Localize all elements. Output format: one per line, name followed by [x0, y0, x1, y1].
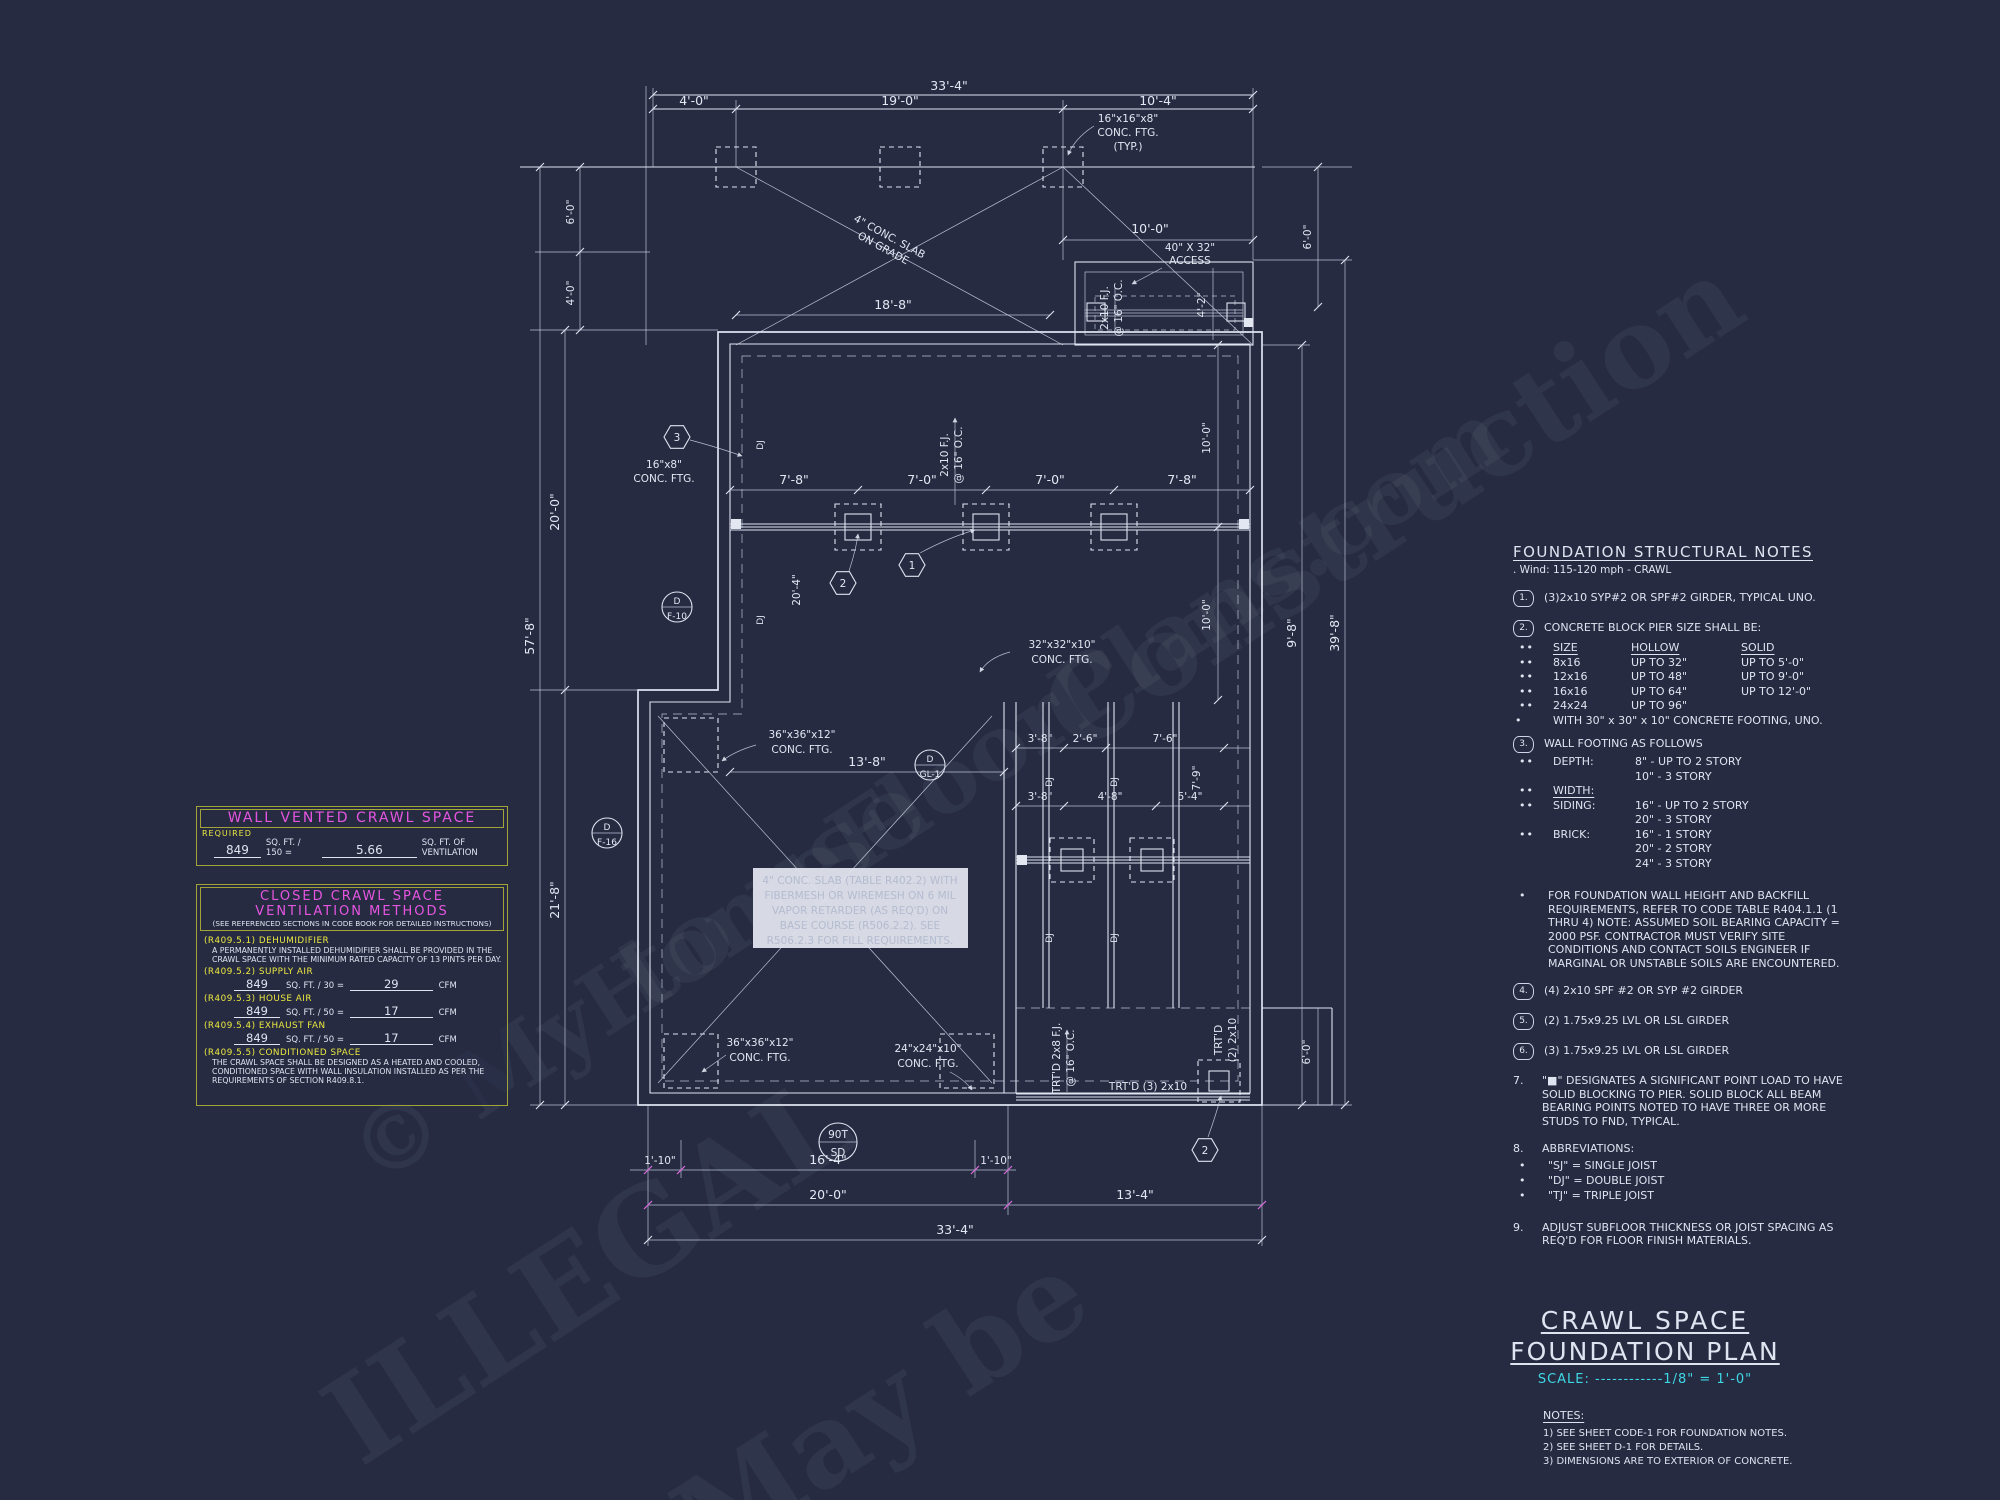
- access-room: 10'-0" 40" X 32" ACCESS 2x10 F.J. @ 16" …: [1059, 221, 1257, 345]
- svg-text:F-10: F-10: [667, 612, 687, 622]
- slab-note-line: R506.2.3 FOR FILL REQUIREMENTS.: [767, 935, 954, 947]
- dim-label: 19'-0": [881, 93, 919, 108]
- footing-label: 32"x32"x10": [1029, 639, 1096, 651]
- slab-note-line: BASE COURSE (R506.2.2). SEE: [780, 920, 940, 932]
- item-body: THE CRAWL SPACE SHALL BE DESIGNED AS A H…: [212, 1058, 502, 1085]
- dim-label: 16'-4": [809, 1152, 847, 1167]
- cfm-value: 29: [350, 978, 433, 991]
- area-value: 849: [234, 1032, 280, 1045]
- lower-left-room: 36"x36"x12" CONC. FTG. 13'-8" D GL-1 4" …: [658, 702, 1016, 1161]
- svg-text:GL-1: GL-1: [920, 770, 941, 780]
- footing-label: 24"x24"x10": [895, 1043, 962, 1055]
- point-load-square: [1239, 519, 1249, 529]
- footing-label: CONC. FTG.: [633, 473, 694, 485]
- dim-label: 7'-8": [779, 472, 809, 487]
- svg-text:90T: 90T: [828, 1129, 848, 1141]
- area-value: 849: [234, 978, 280, 991]
- footing-label: CONC. FTG.: [729, 1052, 790, 1064]
- note-item: 4. (4) 2x10 SPF #2 OR SYP #2 GIRDER: [1513, 984, 1851, 1000]
- note-marker: 9.: [1513, 1221, 1532, 1248]
- keynote-number: 1: [909, 560, 916, 572]
- note-item: 8. ABBREVIATIONS:: [1513, 1142, 1851, 1156]
- formula: SQ. FT. / 50 =: [286, 1035, 344, 1045]
- unit: CFM: [439, 981, 457, 991]
- slab-note-line: VAPOR RETARDER (AS REQ'D) ON: [772, 905, 948, 917]
- dim-label: 39'-8": [1327, 614, 1342, 652]
- joist-tag: DJ: [756, 440, 766, 450]
- joist-tag: DJ: [1045, 933, 1055, 943]
- access-label: ACCESS: [1169, 255, 1211, 267]
- vent-area-value: 849: [214, 844, 261, 858]
- sheet-notes-label: NOTES:: [1543, 1409, 1795, 1423]
- wall-footing-table: ••DEPTH:8" - UP TO 2 STORY 10" - 3 STORY…: [1513, 755, 1851, 871]
- dim-label: 10'-0": [1201, 422, 1213, 454]
- bottom-dimension-chains: 1'-10" 16'-4" 1'-10" 20'-0" 13'-4" 33'-4…: [630, 1105, 1266, 1246]
- item-name: CONDITIONED SPACE: [259, 1048, 361, 1058]
- dim-label: 6'-0": [565, 200, 577, 225]
- code-ref: (R409.5.4): [204, 1021, 256, 1031]
- note-item: 6. (3) 1.75x9.25 LVL OR LSL GIRDER: [1513, 1044, 1851, 1060]
- dim-label: 6'-0": [1301, 1040, 1313, 1065]
- dim-label: 1'-10": [644, 1155, 676, 1167]
- unit: CFM: [439, 1008, 457, 1018]
- note-marker: 8.: [1513, 1142, 1532, 1156]
- footing-label: CONC. FTG.: [1031, 654, 1092, 666]
- notes-title: FOUNDATION STRUCTURAL NOTES: [1513, 546, 1851, 560]
- note-item: 7. "■" DESIGNATES A SIGNIFICANT POINT LO…: [1513, 1074, 1851, 1128]
- structural-notes-panel: FOUNDATION STRUCTURAL NOTES . Wind: 115-…: [1513, 546, 1851, 1262]
- vent-result-value: 5.66: [322, 844, 417, 858]
- detail-marker-gl1: D GL-1: [915, 750, 945, 780]
- dim-label: 18'-8": [874, 297, 912, 312]
- left-dimension-chains: 57'-8" 20'-0" 21'-8" 6'-0" 4'-0": [522, 163, 718, 1109]
- pier-footing: [1198, 1060, 1240, 1102]
- formula: SQ. FT. / 50 =: [286, 1008, 344, 1018]
- panel-title: WALL VENTED CRAWL SPACE: [200, 809, 504, 828]
- detail-marker-f10: D F-10: [662, 592, 692, 622]
- footing-label: CONC. FTG.: [897, 1058, 958, 1070]
- dim-label: 4'-0": [565, 281, 577, 306]
- table-footnote: •WITH 30" x 30" x 10" CONCRETE FOOTING, …: [1513, 714, 1851, 729]
- joist-zone: 3'-8" 2'-6" 7'-6" 3'-8" 4'-8" 5'-4" 7'-9…: [1012, 702, 1250, 1008]
- svg-text:F-16: F-16: [597, 838, 617, 848]
- dim-label: 21'-8": [547, 881, 562, 919]
- dim-label: 20'-4": [791, 574, 803, 606]
- joist-label: 2x10 F.J.: [1099, 286, 1111, 330]
- dim-label: 20'-0": [547, 493, 562, 531]
- point-load-square: [731, 519, 741, 529]
- dim-label: 13'-4": [1116, 1187, 1154, 1202]
- scale-label: SCALE: ------------1/8" = 1'-0": [1495, 1372, 1795, 1387]
- dim-label: 13'-8": [848, 754, 886, 769]
- note-item: 2. CONCRETE BLOCK PIER SIZE SHALL BE:: [1513, 621, 1851, 637]
- item-name: SUPPLY AIR: [259, 967, 313, 977]
- keynote-number: 3: [674, 432, 681, 444]
- cfm-value: 17: [350, 1005, 433, 1018]
- joist-label: TRT'D 2x8 F.J.: [1051, 1023, 1063, 1095]
- corner-footing: [664, 1034, 718, 1088]
- keynote-number: 2: [1202, 1145, 1209, 1157]
- footing-label: (TYP.): [1113, 141, 1142, 153]
- sheet-note-line: 2) SEE SHEET D-1 FOR DETAILS.: [1543, 1441, 1795, 1455]
- dim-label: 9'-8": [1284, 618, 1299, 648]
- point-load-square: [1017, 855, 1027, 865]
- deck-room: TRT'D 2x8 F.J. @ 16" O.C. TRT'D (3) 2x10…: [1016, 1008, 1332, 1161]
- corner-footing: [664, 718, 718, 772]
- abbreviations-list: •"SJ" = SINGLE JOIST •"DJ" = DOUBLE JOIS…: [1513, 1158, 1851, 1203]
- item-body: A PERMANENTLY INSTALLED DEHUMIDIFIER SHA…: [212, 946, 502, 964]
- table-row: ••12x16UP TO 48"UP TO 9'-0": [1513, 670, 1851, 685]
- note-marker: 3.: [1513, 736, 1534, 753]
- dim-label: 7'-6": [1153, 733, 1178, 745]
- table-row: ••16x16UP TO 64"UP TO 12'-0": [1513, 685, 1851, 700]
- vent-unit: SQ. FT. OF VENTILATION: [422, 838, 504, 858]
- keynote-number: 2: [840, 578, 847, 590]
- dim-label: 7'-8": [1167, 472, 1197, 487]
- dim-label: 33'-4": [930, 78, 968, 93]
- slab-note-line: FIBERMESH OR WIREMESH ON 6 MIL: [764, 890, 955, 902]
- note-marker: 5.: [1513, 1013, 1534, 1030]
- dim-label: 4'-2": [1196, 293, 1208, 318]
- footing-label: 36"x36"x12": [727, 1037, 794, 1049]
- sheet-title-line2: FOUNDATION PLAN: [1495, 1336, 1795, 1368]
- dim-label: 10'-4": [1139, 93, 1177, 108]
- dim-label: 2'-6": [1073, 733, 1098, 745]
- dim-label: 5'-4": [1178, 791, 1203, 803]
- area-value: 849: [234, 1005, 280, 1018]
- note-marker: 4.: [1513, 983, 1534, 1000]
- dim-label: 33'-4": [936, 1222, 974, 1237]
- footing-label: 16"x16"x8": [1098, 113, 1158, 125]
- joist-tag: DJ: [1110, 777, 1120, 787]
- code-ref: (R409.5.3): [204, 994, 256, 1004]
- footing-label: 36"x36"x12": [769, 729, 836, 741]
- note-marker: 2.: [1513, 620, 1534, 637]
- joist-tag: DJ: [1045, 777, 1055, 787]
- dim-label: 7'-0": [1035, 472, 1065, 487]
- footing-label: 16"x8": [646, 459, 682, 471]
- point-load-square: [1244, 318, 1253, 327]
- sheet-title-line1: CRAWL SPACE: [1495, 1306, 1795, 1336]
- dim-label: 7'-9": [1191, 766, 1203, 791]
- sheet-note-line: 1) SEE SHEET CODE-1 FOR FOUNDATION NOTES…: [1543, 1427, 1795, 1441]
- joist-tag: DJ: [756, 615, 766, 625]
- note-item: 1. (3)2x10 SYP#2 OR SPF#2 GIRDER, TYPICA…: [1513, 591, 1851, 607]
- sheet-notes: NOTES: 1) SEE SHEET CODE-1 FOR FOUNDATIO…: [1543, 1409, 1795, 1469]
- item-name: HOUSE AIR: [259, 994, 312, 1004]
- footing-label: CONC. FTG.: [771, 744, 832, 756]
- required-label: REQUIRED: [202, 829, 504, 838]
- detail-marker-f16: D F-16: [592, 818, 622, 848]
- note-marker: •: [1513, 889, 1538, 970]
- sheet-note-line: 3) DIMENSIONS ARE TO EXTERIOR OF CONCRET…: [1543, 1455, 1795, 1469]
- girder-label: TRT'D: [1213, 1025, 1225, 1056]
- svg-text:D: D: [674, 597, 681, 607]
- cfm-value: 17: [350, 1032, 433, 1045]
- right-dimension-chains: 9'-8" 39'-8" 6'-0": [1253, 163, 1352, 1109]
- wall-vented-panel: WALL VENTED CRAWL SPACE REQUIRED 849 SQ.…: [196, 806, 508, 866]
- note-item: 9. ADJUST SUBFLOOR THICKNESS OR JOIST SP…: [1513, 1221, 1851, 1248]
- slab-on-grade-label: 4" CONC. SLAB ON GRADE: [845, 213, 927, 273]
- footing-label: CONC. FTG.: [1097, 127, 1158, 139]
- joist-label: 2x10 F.J.: [939, 433, 951, 477]
- table-row: ••24x24UP TO 96": [1513, 699, 1851, 714]
- dim-label: 4'-0": [679, 93, 709, 108]
- svg-text:D: D: [927, 755, 934, 765]
- blueprint-sheet: © MyHomeFloorPlans.com Construction to u…: [0, 0, 2000, 1500]
- note-item: 3. WALL FOOTING AS FOLLOWS: [1513, 737, 1851, 753]
- note-marker: 7.: [1513, 1074, 1532, 1128]
- dim-label: 10'-0": [1131, 221, 1169, 236]
- dim-label: 3'-8": [1028, 791, 1053, 803]
- closed-crawl-panel: CLOSED CRAWL SPACE VENTILATION METHODS (…: [196, 884, 508, 1106]
- code-ref: (R409.5.2): [204, 967, 256, 977]
- girder-label: (2) 2x10: [1227, 1018, 1239, 1062]
- table-row: ••8x16UP TO 32"UP TO 5'-0": [1513, 656, 1851, 671]
- dim-label: 57'-8": [522, 617, 537, 655]
- dim-label: 20'-0": [809, 1187, 847, 1202]
- item-name: DEHUMIDIFIER: [259, 936, 329, 946]
- dim-label: 7'-0": [907, 472, 937, 487]
- code-ref: (R409.5.5): [204, 1048, 256, 1058]
- joist-tag: DJ: [1110, 933, 1120, 943]
- item-name: EXHAUST FAN: [259, 1021, 326, 1031]
- note-marker: 1.: [1513, 590, 1534, 607]
- note-item: 5. (2) 1.75x9.25 LVL OR LSL GIRDER: [1513, 1014, 1851, 1030]
- main-crawl-space: 7'-8" 7'-0" 7'-0" 7'-8" 2 1 20'-4" 2x10 …: [592, 297, 1262, 1105]
- access-label: 40" X 32": [1165, 242, 1215, 254]
- panel-subtitle: (SEE REFERENCED SECTIONS IN CODE BOOK FO…: [201, 919, 503, 928]
- dim-label: 3'-8": [1028, 733, 1053, 745]
- pier: [1227, 303, 1245, 321]
- top-dimension-chain: 33'-4" 4'-0" 19'-0" 10'-4": [646, 78, 1257, 345]
- dim-label: 1'-10": [980, 1155, 1012, 1167]
- formula: SQ. FT. / 30 =: [286, 981, 344, 991]
- code-ref: (R409.5.1): [204, 936, 256, 946]
- title-block: CRAWL SPACE FOUNDATION PLAN SCALE: -----…: [1495, 1306, 1795, 1469]
- panel-title: CLOSED CRAWL SPACE VENTILATION METHODS (…: [200, 887, 504, 931]
- note-marker: 6.: [1513, 1043, 1534, 1060]
- vent-formula: SQ. FT. / 150 =: [266, 838, 317, 858]
- dim-label: 10'-0": [1201, 599, 1213, 631]
- note-item: • FOR FOUNDATION WALL HEIGHT AND BACKFIL…: [1513, 889, 1851, 970]
- girder-label: TRT'D (3) 2x10: [1108, 1081, 1187, 1093]
- dim-label: 4'-8": [1098, 791, 1123, 803]
- svg-text:D: D: [604, 823, 611, 833]
- unit: CFM: [439, 1035, 457, 1045]
- slab-note-line: 4" CONC. SLAB (TABLE R402.2) WITH: [762, 875, 957, 887]
- pier-size-table: ••SIZEHOLLOWSOLID ••8x16UP TO 32"UP TO 5…: [1513, 641, 1851, 728]
- dim-label: 6'-0": [1302, 225, 1314, 250]
- wind-note: . Wind: 115-120 mph - CRAWL: [1513, 564, 1851, 578]
